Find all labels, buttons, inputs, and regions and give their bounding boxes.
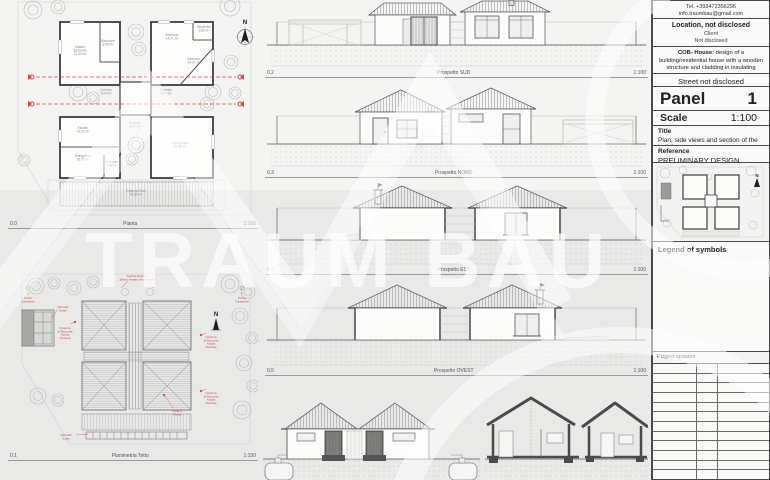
compass-north-plan: N — [235, 20, 255, 47]
roof-plan-drawing: N Turbina Eolica aBasso Impatto Ambienta… — [8, 268, 258, 452]
svg-text:Bedroom14,21 m²: Bedroom14,21 m² — [188, 57, 201, 65]
update-table-cell — [697, 403, 718, 412]
drawing-scale: 1:150 — [243, 453, 256, 459]
roof-scale-bar: 0.1 Planimetria Tetto 1:150 — [8, 452, 258, 461]
svg-text:MasterBedroom21,34 m²: MasterBedroom21,34 m² — [74, 45, 87, 56]
legend-label: Legend of symbols — [658, 245, 764, 254]
scale-value: 1:100 — [731, 112, 757, 124]
svg-text:Cisternadi RaccoltaAcquaPiovan: Cisternadi RaccoltaAcquaPiovana — [58, 326, 73, 340]
panel-label: Panel — [660, 89, 705, 109]
drawing-number: 0.2 — [267, 70, 274, 76]
house-right — [463, 283, 562, 340]
update-table-row — [653, 460, 769, 470]
drawing-title: Planimetria Tetto — [112, 453, 149, 459]
update-table-cell — [653, 470, 697, 479]
update-table-cell — [718, 441, 769, 450]
update-table-cell — [697, 441, 718, 450]
svg-text:Dining Area16,76 m²: Dining Area16,76 m² — [75, 154, 92, 162]
street-value: Street not disclosed — [678, 77, 744, 86]
title-label: Title — [658, 128, 764, 135]
svg-text:PozzoCanadese: PozzoCanadese — [21, 296, 35, 303]
update-table-cell — [718, 383, 769, 392]
update-table-row — [653, 411, 769, 421]
update-table-row — [653, 373, 769, 383]
update-table-cell — [653, 374, 697, 383]
drawing-number: 0.4 — [267, 267, 274, 273]
svg-text:PozzoCanadese: PozzoCanadese — [235, 296, 249, 303]
courtyard-elevation-drawing — [263, 385, 480, 480]
elevation-east-drawing — [265, 178, 648, 266]
svg-text:N: N — [214, 312, 218, 318]
garage-solar — [22, 310, 54, 346]
drawing-scale: 1:100 — [633, 70, 646, 76]
house-right — [468, 186, 567, 240]
street-box: Street not disclosed — [652, 73, 770, 87]
update-table-cell — [718, 470, 769, 479]
floor-plan-drawing: N MasterBedroom21,34 m² Bathroom8,95 m² … — [8, 0, 258, 218]
drawing-title: Prospetto SUD — [437, 70, 470, 76]
elevation-west-drawing — [265, 276, 648, 367]
update-table-cell — [697, 451, 718, 460]
updates-label: Project updates — [657, 354, 695, 360]
roof-trees — [26, 275, 258, 419]
location-title: Location, not disclosed — [653, 22, 769, 29]
update-table-cell — [697, 364, 718, 373]
scale-box: Scale 1:100 — [652, 110, 770, 126]
svg-text:Entrance3,42 m²: Entrance3,42 m² — [106, 160, 119, 168]
client-label: Client — [653, 31, 769, 37]
update-table-cell — [697, 470, 718, 479]
section-a — [487, 398, 579, 463]
dark-door-2 — [363, 431, 386, 461]
title-box: Title Plan, side views and section of th… — [652, 125, 770, 146]
svg-text:Wardrobe2,80 m²: Wardrobe2,80 m² — [197, 25, 211, 33]
svg-text:PannelliSolari: PannelliSolari — [61, 433, 72, 440]
svg-text:Corridor5,04 m²: Corridor5,04 m² — [100, 88, 112, 96]
sections-drawing — [485, 385, 648, 480]
east-scale-bar: 0.4 Prospetto EST 1:100 — [265, 266, 648, 275]
key-plan-drawing: N — [653, 163, 770, 241]
elevation-north-drawing — [265, 86, 648, 169]
drawing-number: 0.1 — [10, 453, 17, 459]
dark-door-1 — [322, 431, 345, 461]
update-table-cell — [697, 393, 718, 402]
house-left — [353, 183, 452, 240]
title-block: Tel. +393472356296 info.traumbau@gmail.c… — [651, 0, 770, 480]
update-table-row — [653, 382, 769, 392]
project-description-box: COB- House: design of a building/residen… — [652, 46, 770, 74]
contact-box: Tel. +393472356296 info.traumbau@gmail.c… — [652, 0, 770, 19]
update-table-row — [653, 364, 769, 373]
update-table-cell — [653, 441, 697, 450]
west-scale-bar: 0.5 Prospetto OVEST 1:100 — [265, 367, 648, 376]
svg-text:PannelliSolari: PannelliSolari — [58, 305, 69, 312]
update-table-row — [653, 469, 769, 479]
plan-scale-bar: 0.0 Pianta 1:100 — [8, 220, 258, 229]
drawing-number: 0.0 — [10, 221, 17, 227]
location-box: Location, not disclosed Client Not discl… — [652, 18, 770, 47]
svg-text:N: N — [755, 173, 758, 178]
drawing-number: 0.3 — [267, 170, 274, 176]
update-table-cell — [718, 374, 769, 383]
svg-text:Cisternadi RaccoltaAcquaPiovan: Cisternadi RaccoltaAcquaPiovana — [204, 391, 219, 405]
south-scale-bar: 0.2 Prospetto SUD 1:100 — [265, 69, 648, 78]
update-table-cell — [697, 374, 718, 383]
door — [373, 118, 388, 144]
svg-text:Bedroom14,71 m²: Bedroom14,71 m² — [166, 33, 179, 41]
solar-strip — [86, 432, 187, 439]
drawing-scale: 1:100 — [243, 221, 256, 227]
pergola — [289, 20, 361, 45]
update-table-cell — [718, 412, 769, 421]
drawing-title: Prospetto OVEST — [434, 368, 474, 374]
pergola — [563, 120, 633, 144]
update-table-cell — [697, 461, 718, 470]
update-table-cell — [718, 422, 769, 431]
update-table-cell — [697, 412, 718, 421]
update-table-cell — [718, 403, 769, 412]
svg-text:Corridor5,27 m²: Corridor5,27 m² — [129, 121, 141, 129]
update-table-cell — [653, 422, 697, 431]
house-right — [460, 1, 550, 46]
update-table-cell — [653, 364, 697, 373]
house-left — [369, 3, 456, 45]
update-table-cell — [653, 412, 697, 421]
panel-box: Panel 1 — [652, 86, 770, 111]
update-table-row — [653, 431, 769, 441]
svg-text:Stufa aPirolisi: Stufa aPirolisi — [172, 409, 182, 416]
svg-text:Kitchen16,21 m²: Kitchen16,21 m² — [77, 126, 90, 134]
house-right — [446, 88, 536, 144]
north-scale-bar: 0.3 Prospetto NORD 1:100 — [265, 169, 648, 178]
update-table-row — [653, 402, 769, 412]
update-table-cell — [697, 422, 718, 431]
drawing-title: Pianta — [123, 221, 137, 227]
update-table-row — [653, 421, 769, 431]
update-table-row — [653, 392, 769, 402]
reference-box: Reference PRELIMINARY DESIGN — [652, 145, 770, 163]
update-table-cell — [653, 451, 697, 460]
update-table-cell — [653, 403, 697, 412]
update-table-cell — [697, 432, 718, 441]
svg-text:Bathroom8,95 m²: Bathroom8,95 m² — [101, 39, 115, 47]
elevation-south-drawing — [265, 0, 648, 69]
update-table-cell — [718, 451, 769, 460]
house-left — [355, 90, 445, 144]
legend-box: Legend of symbols — [652, 241, 770, 352]
svg-text:Cisternadi RaccoltaAcquaPiovan: Cisternadi RaccoltaAcquaPiovana — [204, 335, 219, 349]
phone-number: Tel. +393472356296 — [653, 4, 769, 11]
drawing-scale: 1:100 — [633, 267, 646, 273]
svg-text:Corridor5,07 m²: Corridor5,07 m² — [160, 88, 172, 96]
drawing-scale: 1:100 — [633, 368, 646, 374]
update-table-cell — [718, 461, 769, 470]
update-table-row — [653, 450, 769, 460]
key-plan-thumbnail: N — [652, 162, 770, 242]
update-table-cell — [653, 461, 697, 470]
description-lead: COB- House: — [678, 50, 714, 56]
update-table-cell — [718, 432, 769, 441]
drawing-title: Prospetto EST — [437, 267, 470, 273]
update-table-cell — [653, 432, 697, 441]
drawing-title: Prospetto NORD — [435, 170, 473, 176]
update-table-cell — [653, 393, 697, 402]
north-needle-icon — [754, 178, 760, 187]
svg-text:N: N — [243, 20, 247, 26]
drawing-sheet: N MasterBedroom21,34 m² Bathroom8,95 m² … — [0, 0, 770, 480]
update-table-cell — [718, 393, 769, 402]
compass-north-roof: N — [211, 312, 221, 330]
project-updates-table — [652, 363, 770, 480]
client-value: Not disclosed — [653, 38, 769, 44]
panel-number: 1 — [748, 89, 757, 109]
update-table-cell — [653, 383, 697, 392]
update-table-cell — [697, 383, 718, 392]
drawing-number: 0.5 — [267, 368, 274, 374]
svg-text:Turbina Eolica aBasso Impatto: Turbina Eolica aBasso Impatto Ambientale — [120, 274, 155, 281]
section-b — [582, 403, 648, 462]
reference-label: Reference — [658, 148, 764, 155]
update-table-row — [653, 440, 769, 450]
house-left — [348, 285, 447, 340]
drawing-scale: 1:100 — [633, 170, 646, 176]
scale-label: Scale — [660, 112, 687, 124]
update-table-cell — [718, 364, 769, 373]
